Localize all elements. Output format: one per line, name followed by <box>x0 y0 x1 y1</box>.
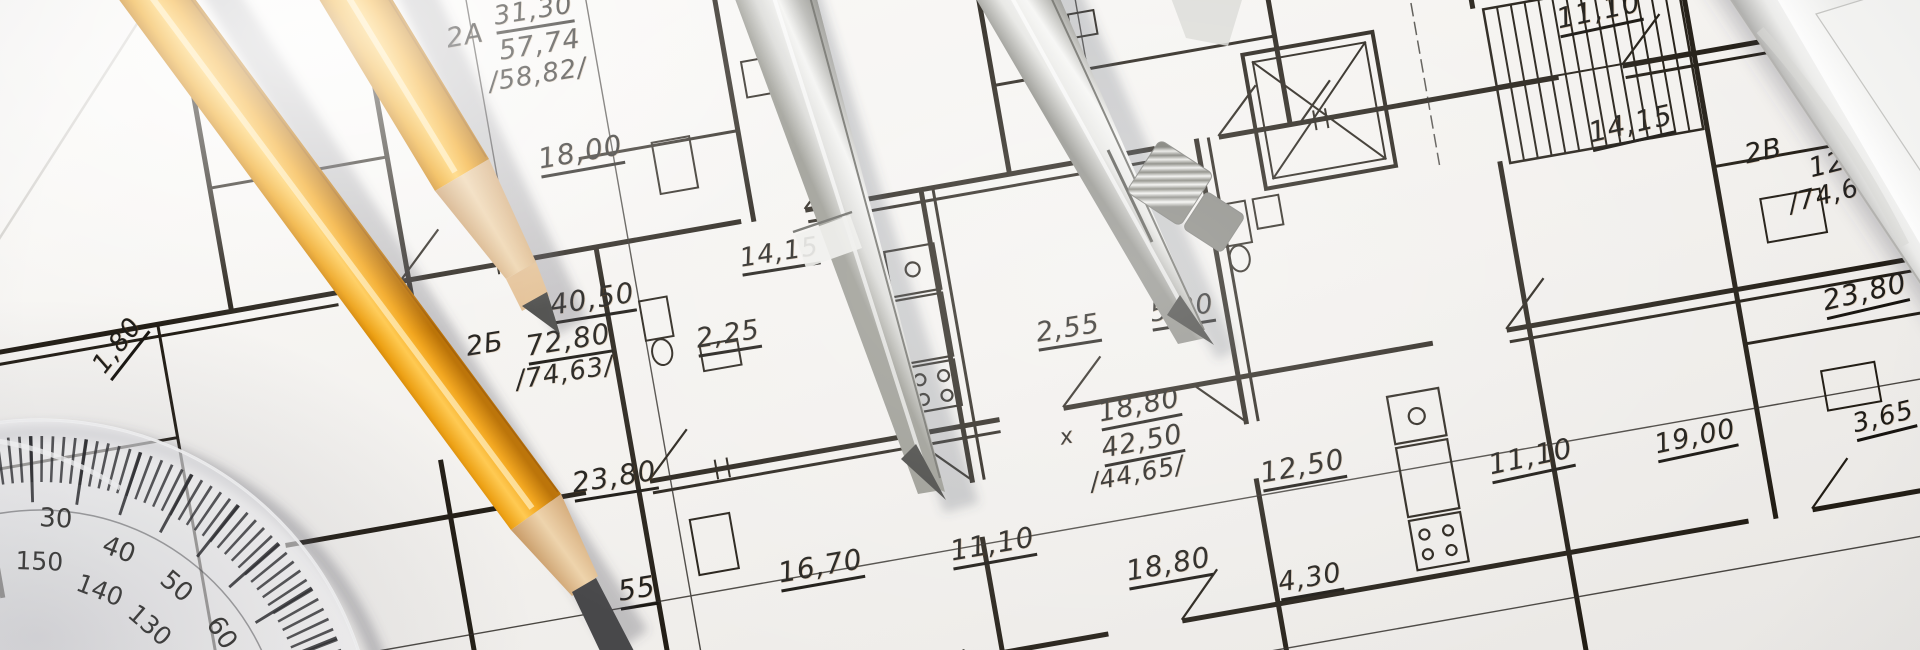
tools-layer <box>0 0 1920 650</box>
blueprint-photo: 30405060150140130 2А31,3057,74/58,82/18,… <box>0 0 1920 650</box>
compass-divider <box>728 0 1245 500</box>
rolled-blueprint <box>1168 0 1920 315</box>
